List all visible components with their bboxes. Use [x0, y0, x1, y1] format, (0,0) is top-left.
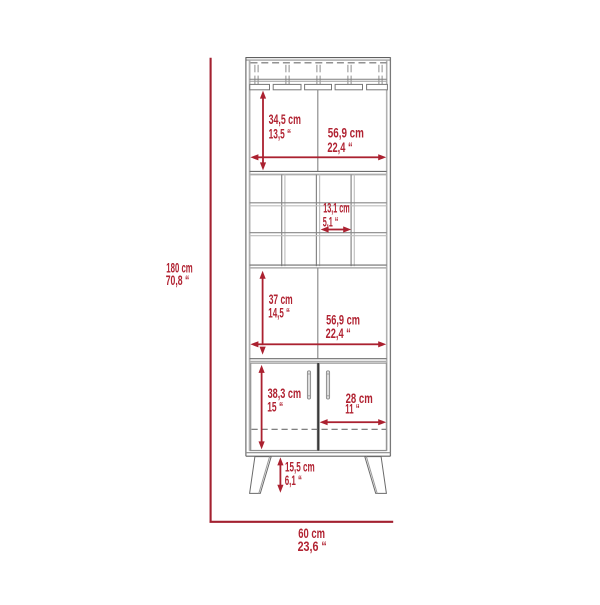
svg-text:13,1 cm: 13,1 cm: [323, 200, 349, 215]
svg-text:14,5 “: 14,5 “: [268, 305, 290, 320]
svg-text:15 “: 15 “: [267, 400, 283, 415]
svg-text:11 “: 11 “: [345, 402, 359, 417]
svg-text:23,6 “: 23,6 “: [298, 539, 327, 554]
svg-text:13,5 “: 13,5 “: [269, 126, 292, 141]
svg-text:34,5 cm: 34,5 cm: [269, 112, 301, 127]
svg-text:22,4 “: 22,4 “: [326, 326, 351, 341]
svg-text:56,9 cm: 56,9 cm: [328, 126, 364, 141]
svg-text:22,4 “: 22,4 “: [327, 140, 352, 155]
svg-text:5,1 “: 5,1 “: [323, 215, 339, 230]
svg-text:70,8 “: 70,8 “: [166, 273, 190, 288]
svg-text:6,1 “: 6,1 “: [285, 473, 302, 488]
